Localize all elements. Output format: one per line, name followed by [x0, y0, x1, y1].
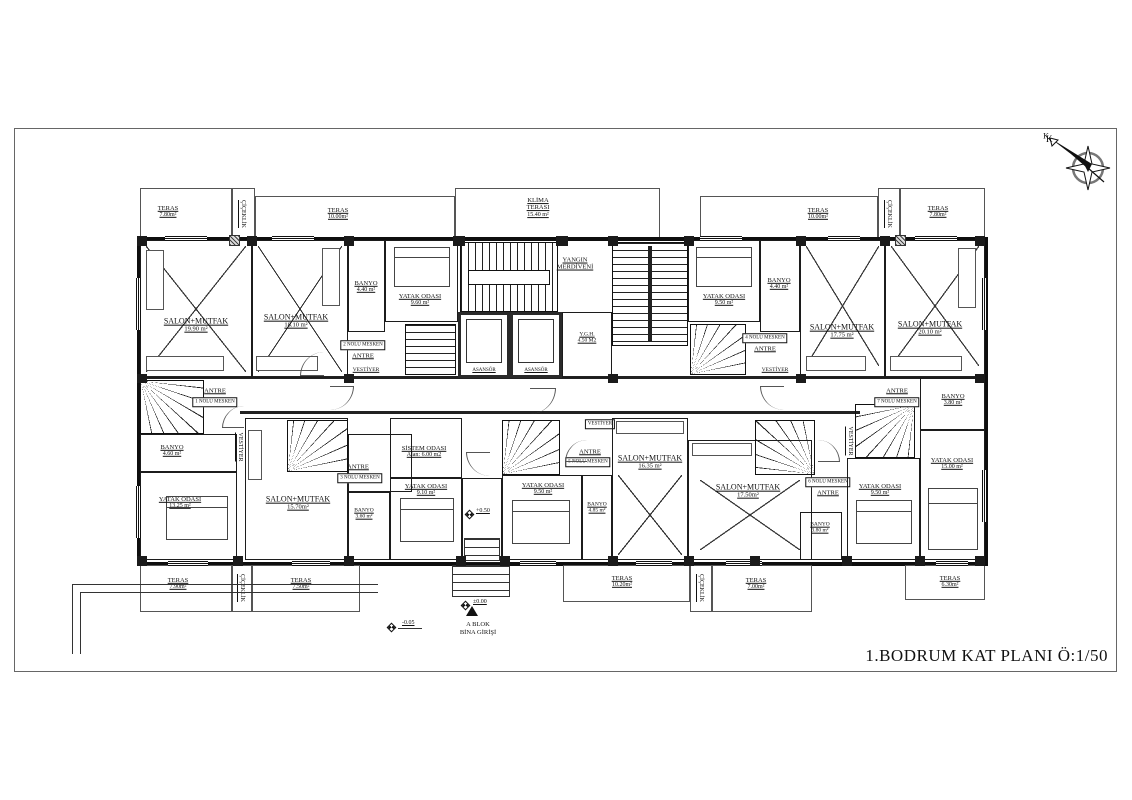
column [880, 236, 890, 246]
terrace-label: TERAS7.00m² [746, 577, 767, 591]
room-label-sistem: SİSTEM ODASIAlan: 6.00 m2 [402, 445, 447, 459]
room-banyo-b3 [582, 475, 612, 560]
room-label-banyo: BANYO4.60 m² [160, 444, 183, 458]
room-label-salon3: SALON+MUTFAK17.75 m² [810, 323, 874, 340]
kitchen-counter [692, 443, 752, 456]
room-label-yatak: YATAK ODASI9.50 m² [703, 293, 745, 307]
room-label-yatak: YATAK ODASI9.50 m² [859, 483, 901, 497]
elevator-shaft-1: ASANSÖR [458, 312, 510, 378]
terrace-label: TERAS7.80m² [928, 205, 949, 219]
window [292, 561, 330, 566]
column [500, 556, 510, 566]
stair-unit4 [690, 324, 746, 375]
elevator-cab [518, 319, 554, 363]
window [982, 278, 987, 330]
room-label-yatak: YATAK ODASI9.60 m² [399, 293, 441, 307]
column [453, 236, 465, 246]
terrace-top-right-1 [700, 196, 878, 240]
antre-label: ANTRE [817, 489, 839, 496]
column [608, 374, 618, 383]
room-label-salon1: SALON+MUTFAK19.90 m² [164, 317, 228, 334]
room-banyo-b2 [348, 492, 390, 560]
room-label-banyo: BANYO4.85 m² [587, 502, 607, 515]
vestiyer-label: VESTİYER [762, 367, 789, 373]
window [636, 561, 672, 566]
kitchen-counter [890, 356, 962, 371]
sofa-furniture [146, 250, 164, 310]
terrace-label: TERAS10.00m² [328, 207, 349, 221]
mesken-tag-4: 4 NOLU MESKEN [742, 333, 787, 343]
stair-unit1 [140, 380, 204, 434]
window [136, 278, 141, 330]
room-label-salon2: SALON+MUTFAK18.10 m² [264, 313, 328, 330]
room-label-yatak: YATAK ODASI9.50 m² [522, 482, 564, 496]
elevator-cab [466, 319, 502, 363]
stair-unit6 [755, 420, 815, 475]
stair-unit5 [502, 420, 560, 475]
column [750, 556, 760, 566]
terrace-label: TERAS7.80m² [158, 205, 179, 219]
terrace-top-left-2 [255, 196, 455, 240]
room-label-banyo: BANYO3.80 m² [941, 393, 964, 407]
stair-unit2 [405, 324, 456, 375]
plan-title: 1.BODRUM KAT PLANI Ö:1/50 [865, 646, 1108, 666]
window [165, 236, 207, 241]
sofa-furniture [958, 248, 976, 308]
column [796, 374, 806, 383]
column [556, 236, 568, 246]
window [915, 236, 957, 241]
stair-unit7 [855, 404, 915, 458]
vestiyer-label-vertical: VESTİYER [237, 433, 243, 462]
window [168, 561, 208, 566]
column [975, 556, 985, 566]
stair-rail [648, 246, 652, 342]
column [684, 556, 694, 566]
planter-label: ÇİÇEKLİK [886, 200, 892, 228]
ygh-label: Y.G.H.4.50 M2 [578, 332, 597, 345]
window [936, 561, 968, 566]
room-label-banyo: BANYO3.60 m² [354, 508, 374, 521]
entry-steps [464, 538, 500, 561]
antre-label: ANTRE [347, 463, 369, 470]
room-label-yatak: YATAK ODASI9.10 m² [405, 483, 447, 497]
level-entry: ±0.00 [473, 599, 487, 605]
kitchen-counter [146, 356, 224, 371]
column [608, 556, 618, 566]
hatched-column [895, 235, 906, 246]
kitchen-counter [806, 356, 866, 371]
klima-terrace-label: KLİMATERASI15.40 m² [527, 197, 550, 219]
bed-furniture [394, 247, 450, 287]
antre-label: ANTRE [886, 387, 908, 394]
column [233, 556, 243, 566]
planter-label: ÇİÇEKLİK [240, 200, 246, 228]
column [344, 236, 354, 246]
bed-furniture [696, 247, 752, 287]
room-label-banyo: BANYO3.80 m² [810, 522, 830, 535]
hatched-column [229, 235, 240, 246]
terrace-label: TERAS10.00m² [808, 207, 829, 221]
column [137, 236, 147, 246]
elevator-label: ASANSÖR [513, 368, 559, 373]
entrance-stoop [452, 565, 510, 597]
column [915, 556, 925, 566]
entrance-arrow-icon [466, 606, 478, 616]
bed-furniture [400, 498, 454, 542]
bed-furniture [928, 488, 978, 550]
room-banyo-bottom-left [140, 434, 237, 472]
column [456, 556, 466, 566]
room-label-yatak: YATAK ODASI13.25 m² [159, 496, 201, 510]
vestiyer-tag: VESTİYER [585, 419, 615, 429]
column [975, 374, 985, 383]
column [137, 556, 147, 566]
mesken-tag-7: 7 NOLU MESKEN [874, 397, 919, 407]
window [136, 486, 141, 538]
terrace-top-left-1 [140, 188, 232, 240]
antre-label: ANTRE [204, 387, 226, 394]
stair-landing [468, 270, 550, 285]
column [247, 236, 257, 246]
stair-unit3 [287, 420, 348, 472]
room-ygh [562, 312, 612, 378]
room-salon6 [612, 418, 688, 560]
room-label-salon7: SALON+MUTFAK17.50m² [716, 483, 780, 500]
compass-k-label: K [1043, 131, 1049, 140]
entry-path-inner [80, 592, 378, 654]
drawing-sheet: K K 1.BODRUM KAT PLANI Ö:1/50 TERAS7.80m… [0, 0, 1132, 800]
column [796, 236, 806, 246]
window [828, 236, 860, 241]
vestiyer-label: VESTİYER [353, 367, 380, 373]
planter-label: ÇİÇEKLİK [698, 574, 704, 602]
room-label-banyo: BANYO4.40 m² [354, 280, 377, 294]
corridor-wall [240, 411, 860, 414]
window [272, 236, 314, 241]
window [520, 561, 556, 566]
mesken-tag-6: 6 NOLU MESKEN [805, 477, 850, 487]
column [344, 374, 354, 383]
bed-furniture [856, 500, 912, 544]
room-label-banyo: BANYO4.40 m² [767, 277, 790, 291]
room-label-yatak: YATAK ODASI15.00 m² [931, 457, 973, 471]
column [975, 236, 985, 246]
marker-leader-line [398, 628, 422, 629]
mesken-tag-1: 1 NOLU MESKEN [192, 397, 237, 407]
room-label-salon6: SALON+MUTFAK16.35 m² [618, 454, 682, 471]
level-path: -0.05 [402, 620, 415, 626]
room-label-salon5: SALON+MUTFAK15.70m² [266, 495, 330, 512]
mesken-tag-3: 3 NOLU MESKEN [337, 473, 382, 483]
column [684, 236, 694, 246]
elevator-label: ASANSÖR [461, 368, 507, 373]
window [700, 236, 742, 241]
antre-label: ANTRE [352, 352, 374, 359]
column [608, 236, 618, 246]
level-floor: +0.50 [476, 508, 490, 514]
window [982, 470, 987, 522]
vestiyer-label-vertical: VESTİYER [847, 427, 853, 456]
sofa-furniture [322, 248, 340, 306]
antre-label: ANTRE [754, 345, 776, 352]
column [842, 556, 852, 566]
fire-stair-label: YANGINMERDİVENİ [557, 257, 593, 272]
terrace-label: TERAS10.20m² [612, 575, 633, 589]
elevator-shaft-2: ASANSÖR [510, 312, 562, 378]
column [137, 374, 147, 383]
mesken-tag-2: 2 NOLU MESKEN [340, 340, 385, 350]
kitchen-counter [616, 421, 684, 434]
room-banyo-b4 [800, 512, 842, 560]
kitchen-counter [248, 430, 262, 480]
entrance-label: A BLOKBİNA GİRİŞİ [460, 621, 496, 638]
column [344, 556, 354, 566]
klima-terrace [455, 188, 660, 240]
bed-furniture [512, 500, 570, 544]
terrace-label: TERAS6.30m² [940, 575, 961, 589]
room-label-salon4: SALON+MUTFAK20.10 m² [898, 320, 962, 337]
